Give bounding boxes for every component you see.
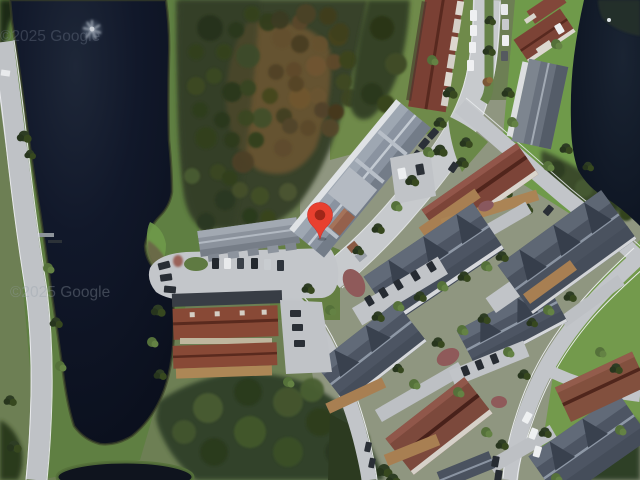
svg-text:©2025 Google: ©2025 Google bbox=[0, 28, 100, 45]
svg-text:©2025 Google: ©2025 Google bbox=[10, 284, 110, 301]
